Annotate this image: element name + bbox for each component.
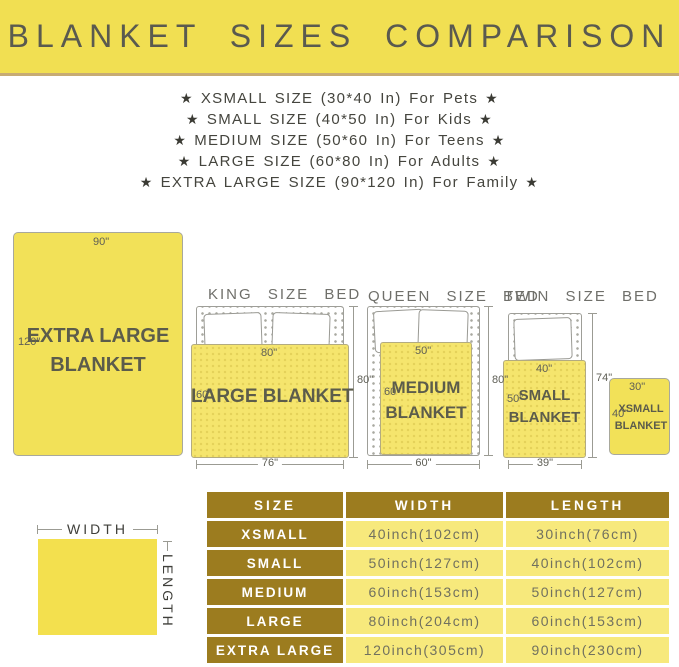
table-row-size: XSMALL	[207, 521, 343, 547]
legend-blanket-square	[38, 539, 157, 635]
size-list-text: SMALL SIZE (40*50 In) For Kids	[207, 111, 472, 128]
star-icon: ★	[166, 132, 194, 148]
size-list-text: XSMALL SIZE (30*40 In) For Pets	[201, 90, 478, 107]
medium-blanket-length-label: 60"	[384, 386, 400, 398]
xsmall-width-label: 30"	[629, 381, 645, 393]
table-row-size: LARGE	[207, 608, 343, 634]
table-row-width: 120inch(305cm)	[346, 637, 503, 663]
star-icon: ★	[472, 111, 500, 127]
page-title: BLANKET SIZES COMPARISON	[8, 18, 672, 55]
extra-large-length-label: 120"	[18, 336, 40, 348]
small-blanket-length-label: 50"	[507, 393, 523, 405]
size-table: SIZE WIDTH LENGTH XSMALL 40inch(102cm) 3…	[207, 492, 669, 663]
size-list-item: ★XSMALL SIZE (30*40 In) For Pets★	[0, 88, 679, 109]
star-icon: ★	[478, 90, 506, 106]
size-list-text: LARGE SIZE (60*80 In) For Adults	[199, 153, 481, 170]
table-row-size: MEDIUM	[207, 579, 343, 605]
king-bed-title: KING SIZE BED	[208, 286, 361, 303]
star-icon: ★	[485, 132, 513, 148]
table-header-size: SIZE	[207, 492, 343, 518]
extra-large-blanket-name: EXTRA LARGE BLANKET	[13, 322, 183, 380]
legend-width-label-wrap: WIDTH	[37, 521, 158, 539]
table-row-length: 60inch(153cm)	[506, 608, 669, 634]
table-row-width: 80inch(204cm)	[346, 608, 503, 634]
king-bed-width-label: 76"	[258, 457, 282, 469]
size-list-item: ★SMALL SIZE (40*50 In) For Kids★	[0, 109, 679, 130]
queen-bed-length-label: 80"	[492, 374, 508, 386]
star-icon: ★	[133, 174, 161, 190]
size-list-item: ★EXTRA LARGE SIZE (90*120 In) For Family…	[0, 172, 679, 193]
size-list-item: ★LARGE SIZE (60*80 In) For Adults★	[0, 151, 679, 172]
table-row-width: 50inch(127cm)	[346, 550, 503, 576]
twin-bed-length-dimension-line	[592, 313, 593, 458]
table-header-length: LENGTH	[506, 492, 669, 518]
twin-bed-width-label: 39"	[533, 457, 557, 469]
king-bed-width-dimension-line: 76"	[196, 464, 344, 465]
queen-bed-width-dimension-line: 60"	[367, 464, 480, 465]
king-bed-length-label: 80"	[357, 374, 373, 386]
extra-large-width-label: 90"	[93, 236, 109, 248]
table-row-size: SMALL	[207, 550, 343, 576]
large-blanket-length-label: 60"	[196, 389, 212, 401]
medium-blanket-width-label: 50"	[415, 345, 431, 357]
legend-width-label: WIDTH	[62, 521, 133, 537]
size-list-item: ★MEDIUM SIZE (50*60 In) For Teens★	[0, 130, 679, 151]
star-icon: ★	[179, 111, 207, 127]
table-row-width: 40inch(102cm)	[346, 521, 503, 547]
table-header-width: WIDTH	[346, 492, 503, 518]
star-icon: ★	[480, 153, 508, 169]
twin-bed-length-label: 74"	[596, 372, 612, 384]
blanket-sizes-infographic: BLANKET SIZES COMPARISON ★XSMALL SIZE (3…	[0, 0, 679, 667]
small-blanket-width-label: 40"	[536, 363, 552, 375]
medium-blanket-name: MEDIUM BLANKET	[380, 375, 472, 425]
large-blanket-width-label: 80"	[261, 347, 277, 359]
size-list: ★XSMALL SIZE (30*40 In) For Pets★ ★SMALL…	[0, 88, 679, 193]
table-row-length: 30inch(76cm)	[506, 521, 669, 547]
table-row-width: 60inch(153cm)	[346, 579, 503, 605]
king-bed-length-dimension-line	[353, 306, 354, 458]
queen-bed-length-dimension-line	[488, 306, 489, 456]
table-row-length: 90inch(230cm)	[506, 637, 669, 663]
star-icon: ★	[173, 90, 201, 106]
pillow	[513, 317, 572, 361]
table-row-size: EXTRA LARGE	[207, 637, 343, 663]
xsmall-length-label: 40"	[612, 408, 628, 420]
star-icon: ★	[518, 174, 546, 190]
size-list-text: MEDIUM SIZE (50*60 In) For Teens	[194, 132, 485, 149]
banner: BLANKET SIZES COMPARISON	[0, 0, 679, 76]
legend-length-label: LENGTH	[160, 551, 176, 632]
small-blanket-name: SMALL BLANKET	[503, 385, 586, 429]
size-list-text: EXTRA LARGE SIZE (90*120 In) For Family	[161, 174, 519, 191]
table-row-length: 40inch(102cm)	[506, 550, 669, 576]
table-row-length: 50inch(127cm)	[506, 579, 669, 605]
twin-bed-title: TWIN SIZE BED	[504, 288, 659, 305]
queen-bed-width-label: 60"	[411, 457, 435, 469]
large-blanket-name: LARGE BLANKET	[191, 386, 349, 408]
star-icon: ★	[171, 153, 199, 169]
twin-bed-width-dimension-line: 39"	[508, 464, 582, 465]
